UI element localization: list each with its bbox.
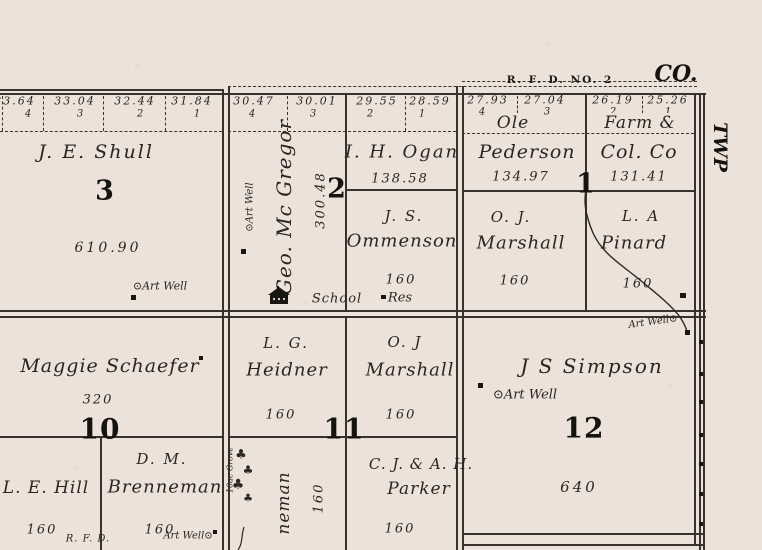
parcel-acreage: 160 <box>266 408 297 423</box>
building-icon <box>213 530 217 534</box>
lot-divider-dashed <box>462 133 694 134</box>
school-label: School <box>312 292 362 307</box>
lot-acreage: 27.04 <box>524 94 566 107</box>
boundary-tick <box>699 433 703 437</box>
quarter-line <box>345 189 456 191</box>
lot-number: 4 <box>479 107 485 118</box>
boundary-tick <box>699 492 703 496</box>
artesian-well-label: Art Well⊙ <box>163 531 212 542</box>
building-icon <box>381 295 386 299</box>
parcel-owner: O. J <box>388 333 423 351</box>
quarter-line <box>585 93 587 310</box>
section-line <box>462 533 703 535</box>
parcel-acreage: 160 <box>385 522 416 537</box>
lot-acreage: 33.04 <box>54 95 96 108</box>
well-icon: ⊙ <box>133 280 142 293</box>
parcel-owner: Farm & <box>601 113 679 133</box>
parcel-acreage: 640 <box>560 478 598 496</box>
lot-number: 1 <box>419 109 425 120</box>
parcel-owner: J. S. <box>385 207 424 225</box>
parcel-owner: Ole <box>494 113 532 133</box>
building-icon <box>131 295 136 300</box>
section-number: 3 <box>95 176 115 207</box>
section-line <box>462 86 464 550</box>
plat-map: CO. TWP R. F. D. NO. 2 R. F. D. 33.64 33… <box>0 0 762 550</box>
lot-divider-dashed <box>43 96 44 131</box>
building-icon <box>685 330 690 335</box>
rfd-bottom-label: R. F. D. <box>66 534 110 545</box>
section-line <box>462 544 703 546</box>
twp-label: TWP <box>709 122 731 172</box>
parcel-owner: L. E. Hill <box>3 478 89 498</box>
lot-divider-dashed <box>0 131 222 132</box>
parcel-acreage: 160 <box>386 273 417 288</box>
section-number: 11 <box>324 413 365 446</box>
lot-acreage: 28.59 <box>409 95 451 108</box>
parcel-owner: Heidner <box>246 360 327 381</box>
lot-number: 3 <box>310 109 316 120</box>
section-line <box>0 310 706 312</box>
well-icon: ⊙ <box>493 388 504 403</box>
lot-number: 4 <box>249 109 255 120</box>
section-line <box>0 89 222 91</box>
lot-divider-dashed <box>228 131 456 132</box>
parcel-owner: Pederson <box>478 141 575 163</box>
parcel-owner: Brenneman <box>108 477 223 498</box>
building-icon <box>241 249 246 254</box>
parcel-owner: C. J. & A. H. <box>369 455 473 473</box>
parcel-acreage: 160 <box>312 483 327 514</box>
lot-acreage: 26.19 <box>592 94 634 107</box>
parcel-owner: I. H. Ogan <box>345 142 459 163</box>
grove-trees-icon: ♣ <box>243 463 254 477</box>
building-icon <box>478 383 483 388</box>
section-number: 12 <box>564 412 605 445</box>
parcel-owner: L. A <box>622 207 660 225</box>
artesian-well-label: ⊙Art Well <box>133 280 187 293</box>
boundary-tick <box>699 400 703 404</box>
lot-number: 3 <box>77 109 83 120</box>
section-line <box>694 93 696 545</box>
lot-divider-dashed <box>405 96 406 131</box>
lot-number: 2 <box>367 109 373 120</box>
building-icon <box>680 293 686 298</box>
township-boundary-line <box>699 93 701 550</box>
lot-acreage: 30.01 <box>296 95 338 108</box>
boundary-tick <box>699 522 703 526</box>
parcel-owner: Geo. Mc Gregor <box>272 119 296 295</box>
parcel-acreage: 160 <box>386 408 417 423</box>
artesian-well-label: ⊙Art Well <box>493 388 557 403</box>
lot-acreage: 31.84 <box>171 95 213 108</box>
grove-trees-icon: ♣ <box>235 448 247 463</box>
section-line <box>0 316 706 318</box>
lot-acreage: 25.26 <box>647 94 689 107</box>
parcel-acreage: 160 <box>27 523 58 538</box>
building-icon <box>199 356 203 360</box>
section-number: 1 <box>576 169 596 200</box>
residence-label: Res <box>388 291 412 306</box>
parcel-acreage: 610.90 <box>75 240 142 256</box>
parcel-owner: Pinard <box>601 233 667 254</box>
lot-number: 4 <box>25 109 31 120</box>
parcel-owner: Marshall <box>477 233 566 254</box>
rfd-route-label: R. F. D. NO. 2 <box>507 74 614 86</box>
parcel-owner: Marshall <box>366 360 455 381</box>
parcel-owner: L. G. <box>263 334 309 352</box>
parcel-owner: Parker <box>387 479 450 499</box>
lot-number: 2 <box>137 109 143 120</box>
parcel-owner: J. E. Shull <box>38 141 154 163</box>
parcel-owner: O. J. <box>491 208 532 226</box>
parcel-acreage: 134.97 <box>492 170 550 185</box>
lot-acreage: 29.55 <box>356 95 398 108</box>
grove-trees-icon: ♣ <box>243 492 253 505</box>
grove-label: 10ac Grove <box>226 447 235 493</box>
parcel-acreage: 160 <box>500 274 531 289</box>
section-number: 2 <box>327 174 347 205</box>
township-boundary-line <box>703 93 705 550</box>
well-icon: ⊙ <box>668 313 678 325</box>
parcel-owner: J S Simpson <box>520 354 663 378</box>
boundary-tick <box>699 462 703 466</box>
lot-acreage: 27.93 <box>467 94 509 107</box>
lot-acreage: 32.44 <box>114 95 156 108</box>
parcel-acreage: 138.58 <box>371 172 429 187</box>
parcel-owner: neman <box>274 471 294 534</box>
parcel-owner: D. M. <box>136 450 187 468</box>
lot-number: 3 <box>544 107 550 118</box>
county-label: CO. <box>654 61 697 87</box>
lot-number: 1 <box>194 109 200 120</box>
well-icon: ⊙ <box>204 531 212 542</box>
lot-acreage: 33.64 <box>0 95 36 108</box>
section-number: 10 <box>80 413 121 446</box>
lot-divider-dashed <box>165 96 166 131</box>
parcel-owner: Maggie Schaefer <box>20 355 199 377</box>
lot-acreage: 30.47 <box>233 95 275 108</box>
parcel-acreage: 320 <box>83 393 114 408</box>
boundary-tick <box>699 340 703 344</box>
lot-divider-dashed <box>103 96 104 131</box>
boundary-tick <box>699 372 703 376</box>
artesian-well-label: ⊙Art Well <box>245 182 256 231</box>
parcel-acreage: 131.41 <box>610 170 668 185</box>
parcel-owner: Ommenson <box>347 231 458 252</box>
parcel-owner: Col. Co <box>600 141 677 163</box>
parcel-acreage: 160 <box>623 277 654 292</box>
well-icon: ⊙ <box>245 223 256 231</box>
